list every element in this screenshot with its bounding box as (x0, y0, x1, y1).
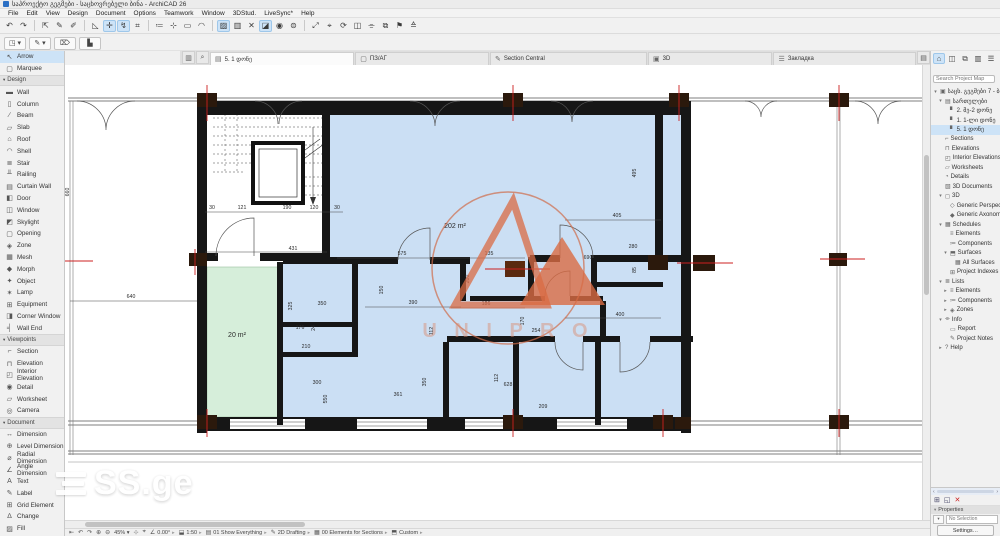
tab-label: 3D (663, 56, 671, 62)
expander-icon: ▾ (943, 250, 948, 256)
zone-icon: ◈ (5, 242, 14, 250)
toolbox-item-zone[interactable]: ◈Zone (0, 240, 64, 252)
toolbox-item-label: Column (17, 101, 39, 108)
tree-item-icon: ▘ (950, 117, 955, 124)
toolbar-icon-3[interactable]: ⇱ (39, 20, 52, 32)
toolbox-item-label: Beam (17, 112, 33, 119)
tree-item-icon: ◻ (945, 193, 950, 200)
menu-design[interactable]: Design (64, 10, 92, 17)
dim-label: 690 (584, 255, 593, 261)
tree-item-label: Zones (957, 307, 974, 313)
radial-dimension-icon: ⌀ (5, 454, 14, 462)
navigator-icon-4[interactable]: ☰ (985, 53, 997, 64)
chevron-right-icon: ▸ (172, 530, 175, 536)
toolbox-item-object[interactable]: ✦Object (0, 275, 64, 287)
quick-option-3[interactable]: ✎2D Drafting▸ (271, 529, 310, 536)
equipment-icon: ⊞ (5, 301, 14, 309)
toolbar-icon-31[interactable]: ≙ (407, 20, 420, 32)
toolbar-icon-8[interactable]: ✛ (103, 20, 116, 32)
tab-5-1-[interactable]: ▤5. 1 დონე (210, 52, 354, 65)
mesh-icon: ▦ (5, 253, 14, 261)
lamp-icon: ✶ (5, 289, 14, 297)
quick-option-button-2[interactable]: ⌦ (54, 37, 76, 50)
toolbar-icon-28[interactable]: ⌯ (365, 20, 378, 32)
toolbox-item-worksheet[interactable]: ▱Worksheet (0, 393, 64, 405)
navigator-item-surfaces[interactable]: ▾⬒Surfaces (931, 249, 1000, 259)
quick-option-label: 1:50 (186, 530, 197, 536)
dim-label: 640 (127, 294, 136, 300)
tree-item-icon: ⊞ (950, 269, 955, 276)
tree-item-icon: ▤ (945, 98, 951, 105)
stair-icon: ≣ (5, 159, 14, 167)
chevron-right-icon: ▸ (420, 530, 423, 536)
toolbox-item-label: Slab (17, 124, 30, 131)
settings-button[interactable]: Settings… (937, 525, 994, 536)
chevron-right-icon: ▸ (385, 530, 388, 536)
quick-option-0[interactable]: ∠0.00°▸ (150, 529, 175, 536)
dim-label: 495 (632, 169, 638, 178)
navigator-item-project-indexes[interactable]: ⊞Project Indexes (931, 268, 1000, 278)
toolbox-item-morph[interactable]: ◆Morph (0, 263, 64, 275)
navigator-icon-0[interactable]: ⌂ (933, 53, 945, 64)
navigator-item-3d[interactable]: ▾◻3D (931, 192, 1000, 202)
marquee-icon: ▢ (5, 65, 14, 73)
panel-icon-0[interactable]: ⊞ (934, 496, 940, 504)
chevron-right-icon: ▸ (199, 530, 202, 536)
tree-item-label: Sections (951, 136, 974, 142)
toolbox-item-label: Elevation (17, 360, 43, 367)
toolbar-separator (304, 20, 305, 31)
toolbox-item-text[interactable]: AText (0, 476, 64, 488)
toolbox-item-label: Mesh (17, 254, 32, 261)
navigator-item-components[interactable]: ≔Components (931, 239, 1000, 249)
toolbox-item-column[interactable]: ▯Column (0, 98, 64, 110)
main-toolbar: ↶↷⇱✎✐◺✛↯⌗≔⊹▭◠▨▥✕◪◉⊜⤢⌖⟳◫⌯⧉⚑≙ (0, 18, 1000, 34)
navigator-item-3d-documents[interactable]: ▧3D Documents (931, 182, 1000, 192)
menu-livesync-[interactable]: LiveSync* (260, 10, 297, 17)
expander-icon: ▾ (938, 193, 943, 199)
expander-icon: ▾ (933, 89, 938, 95)
toolbox-item-wall[interactable]: ▬Wall (0, 86, 64, 98)
toolbar-separator (212, 20, 213, 31)
navigator-item-5-1-[interactable]: ▘5. 1 დონე (931, 125, 1000, 135)
tree-item-label: Elevations (952, 146, 980, 152)
expander-icon: ▾ (938, 222, 943, 228)
chevron-down-icon[interactable]: ▾ (933, 515, 944, 524)
toolbar-icon-4[interactable]: ✎ (53, 20, 66, 32)
toolbar-separator (34, 20, 35, 31)
dim-label: 190 (283, 205, 292, 211)
navigator-item-generic-axonometry[interactable]: ◆Generic Axonometry (931, 211, 1000, 221)
tab-label: Section Central (504, 56, 545, 62)
fill-icon: ▨ (5, 525, 14, 533)
tab--[interactable]: ☰Закладка (773, 52, 916, 65)
tree-item-label: Project Indexes (957, 269, 998, 275)
dim-label: 550 (323, 395, 329, 404)
quick-option-button-3[interactable]: ▙ (79, 37, 101, 50)
toolbox-item-stair[interactable]: ≣Stair (0, 157, 64, 169)
toolbox-item-arrow[interactable]: ↖Arrow (0, 51, 64, 63)
project-map-tree: ▾▣საცხ. გეგმები 7 - ბინა▾▤სართულები▘2. მ… (931, 87, 1000, 353)
tree-item-icon: ▧ (945, 183, 951, 190)
toolbox-item-angle-dimension[interactable]: ∠Angle Dimension (0, 464, 64, 476)
tree-item-label: 2. მე-2 დონე (957, 107, 993, 114)
curtain-wall-icon: ▤ (5, 183, 14, 191)
toolbox-item-skylight[interactable]: ◩Skylight (0, 216, 64, 228)
quick-option-icon: ▦ (314, 529, 320, 536)
toolbox-item-label: Opening (17, 230, 41, 237)
tree-item-icon: ▣ (940, 88, 946, 95)
section-icon: ⌐ (5, 348, 14, 355)
floor-plan: 6606403012119012030431575135202 m²495405… (65, 65, 930, 520)
toolbox-item-lamp[interactable]: ✶Lamp (0, 287, 64, 299)
toolbox-item-label: Angle Dimension (17, 463, 64, 477)
dim-label: 390 (409, 300, 418, 306)
corner-window-icon: ◨ (5, 312, 14, 320)
tree-item-icon: ✎ (950, 335, 955, 342)
toolbox-group-design[interactable]: ▾Design (0, 75, 64, 87)
navigator-item-sections[interactable]: ⌐Sections (931, 135, 1000, 145)
navigator-item-info[interactable]: ▾⌯Info (931, 315, 1000, 325)
elevator-shaft (253, 143, 303, 203)
horizontal-scrollbar[interactable] (65, 520, 930, 528)
quick-option-button-1[interactable]: ✎ ▾ (29, 37, 51, 50)
label-icon: ✎ (5, 489, 14, 497)
quick-option-5[interactable]: ⬒Custom▸ (391, 529, 422, 536)
navigator-toolbar: ⌂◫⧉▥☰ (931, 51, 1000, 66)
railing-icon: ╨ (5, 171, 14, 178)
toolbox-item-opening[interactable]: ▢Opening (0, 228, 64, 240)
tree-item-icon: ▘ (950, 107, 955, 114)
dim-label: 300 (313, 380, 322, 386)
expander-icon: ▾ (938, 317, 943, 323)
dim-label: 575 (398, 251, 407, 257)
opening-icon: ▢ (5, 230, 14, 238)
tree-item-icon: ▦ (945, 221, 951, 228)
toolbox-item-marquee[interactable]: ▢Marquee (0, 63, 64, 75)
toolbar-icon-12[interactable]: ≔ (153, 20, 166, 32)
toolbox-item-roof[interactable]: ⌂Roof (0, 134, 64, 146)
toolbox-item-label: Object (17, 278, 35, 285)
expander-icon: ▸ (943, 288, 948, 294)
tab-icon: ▢ (360, 55, 367, 63)
toolbar-icon-27[interactable]: ◫ (351, 20, 364, 32)
toolbox-item-dimension[interactable]: ↔Dimension (0, 429, 64, 441)
toolbox-item-shell[interactable]: ◠Shell (0, 145, 64, 157)
navigator-item-interior-elevations[interactable]: ◰Interior Elevations (931, 154, 1000, 164)
toolbox-item-label: Detail (17, 384, 33, 391)
tree-item-label: 3D (952, 193, 960, 199)
navigator-item-elements[interactable]: ≡Elements (931, 230, 1000, 240)
toolbox-item-label: Dimension (17, 431, 47, 438)
dim-label: 120 (310, 205, 319, 211)
navigator-item-schedules[interactable]: ▾▦Schedules (931, 220, 1000, 230)
toolbar-icon-24[interactable]: ⤢ (309, 20, 322, 32)
statusbar-nav-icon[interactable]: ↶ (78, 529, 83, 536)
toolbox-item-label: Grid Element (17, 502, 54, 509)
toolbar-icon-1[interactable]: ↷ (17, 20, 30, 32)
toolbox-group-viewpoints[interactable]: ▾Viewpoints (0, 334, 64, 346)
toolbox-item-label: Marquee (17, 65, 42, 72)
toolbar-icon-21[interactable]: ◉ (273, 20, 286, 32)
toolbox-item-railing[interactable]: ╨Railing (0, 169, 64, 181)
panel-icon-1[interactable]: ◱ (944, 496, 951, 504)
navigator-item-zones[interactable]: ▸◈Zones (931, 306, 1000, 316)
toolbox-item-camera[interactable]: ◎Camera (0, 405, 64, 417)
toolbox-item-section[interactable]: ⌐Section (0, 346, 64, 358)
tree-item-icon: ≡ (950, 231, 954, 237)
room-fill-green (207, 267, 279, 417)
dim-label: 121 (238, 205, 247, 211)
statusbar-nav-icon[interactable]: ⇤ (69, 529, 74, 536)
quick-option-label: 2D Drafting (278, 530, 306, 536)
quick-option-icon: ∠ (150, 529, 155, 536)
tree-item-label: Interior Elevations (953, 155, 1000, 161)
dim-label: 112 (494, 374, 500, 382)
statusbar-nav-icon[interactable]: ↷ (87, 529, 92, 536)
statusbar-nav-icon[interactable]: ⊕ (96, 529, 101, 536)
toolbar-icon-7[interactable]: ◺ (89, 20, 102, 32)
quick-option-1[interactable]: ⬓1:50▸ (179, 529, 202, 536)
toolbar-icon-17[interactable]: ▨ (217, 20, 230, 32)
toolbar-icon-13[interactable]: ⊹ (167, 20, 180, 32)
title-bar: საპროექტო გეგმები - საცხოვრებელი ბინა - … (0, 0, 1000, 9)
navigator-icon-2[interactable]: ⧉ (959, 53, 971, 64)
navigator-item-help[interactable]: ▸?Help (931, 344, 1000, 354)
tab-3d[interactable]: ▣3D (648, 52, 772, 65)
tree-item-label: Info (952, 317, 962, 323)
toolbox-item-equipment[interactable]: ⊞Equipment (0, 299, 64, 311)
tree-item-label: All Surfaces (963, 260, 995, 266)
toolbox-item-door[interactable]: ◧Door (0, 193, 64, 205)
toolbar-icon-20[interactable]: ◪ (259, 20, 272, 32)
navigator-item-components[interactable]: ▸≔Components (931, 296, 1000, 306)
expander-icon: ▸ (943, 307, 948, 313)
expander-icon: ▸ (938, 345, 943, 351)
tree-item-icon: ≣ (945, 278, 950, 285)
tree-item-label: Generic Axonometry (957, 212, 1000, 218)
chevron-right-icon: ▸ (308, 530, 311, 536)
navigator-item-elevations[interactable]: ⊓Elevations (931, 144, 1000, 154)
menu-help[interactable]: Help (297, 10, 318, 17)
tab--[interactable]: ▢ПЗ/АГ (355, 52, 489, 65)
tab-icon: ▤ (215, 55, 222, 63)
beam-icon: ∕ (5, 112, 14, 119)
camera-icon: ◎ (5, 407, 14, 415)
toolbox-item-label: Label (17, 490, 32, 497)
app-icon (3, 1, 9, 7)
statusbar-tool-icon[interactable]: ⊹ (133, 529, 138, 536)
quick-option-icon: ▤ (206, 529, 212, 536)
search-input[interactable] (933, 75, 995, 83)
toolbox-item-fill[interactable]: ▨Fill (0, 523, 64, 535)
navigator-item-details[interactable]: ◔Details (931, 173, 1000, 183)
toolbox-item-change[interactable]: ∆Change (0, 511, 64, 523)
tree-item-label: 5. 1 დონე (957, 126, 984, 133)
toolbox-item-slab[interactable]: ▱Slab (0, 122, 64, 134)
properties-header[interactable]: ▾Properties (931, 506, 1000, 514)
elevation-icon: ⊓ (5, 360, 14, 368)
worksheet-icon: ▱ (5, 395, 14, 403)
toolbar-icon-10[interactable]: ⌗ (131, 20, 144, 32)
tab-section-central[interactable]: ✎Section Central (490, 52, 647, 65)
dim-label: 202 m² (444, 223, 466, 230)
toolbar-icon-14[interactable]: ▭ (181, 20, 194, 32)
tree-item-label: Schedules (953, 222, 981, 228)
navigator-item-elements[interactable]: ▸≡Elements (931, 287, 1000, 297)
quick-option-2[interactable]: ▤01 Show Everything▸ (206, 529, 267, 536)
tab-icon: ☰ (778, 55, 784, 63)
level-dimension-icon: ⊕ (5, 442, 14, 450)
menu-window[interactable]: Window (198, 10, 229, 17)
toolbox-item-label: Wall End (17, 325, 42, 332)
quick-option-icon: ⬒ (391, 529, 397, 536)
dim-label: 405 (613, 213, 622, 219)
navigator-item-lists[interactable]: ▾≣Lists (931, 277, 1000, 287)
toolbox-item-label: Window (17, 207, 39, 214)
toolbox-item-label[interactable]: ✎Label (0, 487, 64, 499)
tree-item-label: Surfaces (958, 250, 982, 256)
wall-end-icon: ╡ (5, 325, 14, 332)
navigator-item-1-1-[interactable]: ▘1. 1-ლი დონე (931, 116, 1000, 126)
navigator-item--7-[interactable]: ▾▣საცხ. გეგმები 7 - ბინა (931, 87, 1000, 97)
tab-list-button[interactable]: ▥ (182, 51, 195, 64)
toolbar-icon-22[interactable]: ⊜ (287, 20, 300, 32)
dim-label: 30 (209, 205, 215, 211)
window-title: საპროექტო გეგმები - საცხოვრებელი ბინა - … (12, 0, 186, 8)
toolbox-item-mesh[interactable]: ▦Mesh (0, 252, 64, 264)
toolbox-item-curtain-wall[interactable]: ▤Curtain Wall (0, 181, 64, 193)
door-icon: ◧ (5, 194, 14, 202)
chevron-right-icon: ▸ (264, 530, 267, 536)
quick-option-label: Custom (399, 530, 418, 536)
toolbar-icon-0[interactable]: ↶ (3, 20, 16, 32)
toolbox-item-label: Roof (17, 136, 30, 143)
toolbox-item-label: Lamp (17, 289, 33, 296)
drawing-canvas[interactable]: 6606403012119012030431575135202 m²495405… (65, 65, 930, 520)
toolbar-icon-25[interactable]: ⌖ (323, 20, 336, 32)
tree-item-label: Components (958, 241, 992, 247)
tree-item-icon: ⌯ (945, 316, 950, 323)
toolbox-item-detail[interactable]: ◉Detail (0, 381, 64, 393)
toolbar-separator (84, 20, 85, 31)
navigator-icon-1[interactable]: ◫ (946, 53, 958, 64)
menu-teamwork[interactable]: Teamwork (160, 10, 198, 17)
toolbar-icon-5[interactable]: ✐ (67, 20, 80, 32)
toolbar-icon-15[interactable]: ◠ (195, 20, 208, 32)
dim-label: 350 (422, 378, 428, 387)
menu-bar: FileEditViewDesignDocumentOptionsTeamwor… (0, 9, 1000, 18)
status-bar: ⇤↶↷⊕⊖45% ▾⊹⌖∠0.00°▸⬓1:50▸▤01 Show Everyt… (65, 528, 930, 536)
toolbox-item-corner-window[interactable]: ◨Corner Window (0, 311, 64, 323)
wall-icon: ▬ (5, 89, 14, 96)
tab-list-button[interactable]: ⌕ (196, 51, 209, 64)
statusbar-nav-icon[interactable]: ⊖ (105, 529, 110, 536)
tab-label: ПЗ/АГ (370, 56, 387, 62)
tree-item-label: Components (958, 298, 992, 304)
navigator-item-all-surfaces[interactable]: ▦All Surfaces (931, 258, 1000, 268)
window-icon: ◫ (5, 206, 14, 214)
toolbar-icon-26[interactable]: ⟳ (337, 20, 350, 32)
menu-options[interactable]: Options (130, 10, 160, 17)
close-icon[interactable]: ✕ (955, 496, 961, 504)
toolbox-item-label: Stair (17, 160, 30, 167)
arrow-icon: ↖ (5, 53, 14, 61)
toolbox-group-document[interactable]: ▾Document (0, 417, 64, 429)
vertical-scrollbar[interactable] (922, 65, 930, 520)
tab-overflow-button[interactable]: ▤ (917, 51, 930, 64)
properties-header-label: Properties (938, 507, 963, 513)
dim-label: 30 (334, 205, 340, 211)
quick-option-label: 01 Show Everything (213, 530, 262, 536)
toolbox-item-window[interactable]: ◫Window (0, 204, 64, 216)
text-icon: A (5, 478, 14, 485)
dim-label: 325 (288, 302, 294, 311)
quick-option-button-0[interactable]: ◳ ▾ (4, 37, 26, 50)
quick-option-4[interactable]: ▦00 Elements for Sections▸ (314, 529, 387, 536)
menu-view[interactable]: View (42, 10, 64, 17)
toolbox-item-interior-elevation[interactable]: ◰Interior Elevation (0, 370, 64, 382)
navigator-icon-3[interactable]: ▥ (972, 53, 984, 64)
roof-icon: ⌂ (5, 136, 14, 143)
tab-label: 5. 1 დონე (225, 56, 252, 63)
toolbar-icon-9[interactable]: ↯ (117, 20, 130, 32)
toolbar-icon-18[interactable]: ▥ (231, 20, 244, 32)
menu-document[interactable]: Document (92, 10, 130, 17)
toolbar-icon-30[interactable]: ⚑ (393, 20, 406, 32)
navigator-item-generic-perspective[interactable]: ◇Generic Perspective (931, 201, 1000, 211)
toolbox-item-label: Zone (17, 242, 31, 249)
toolbox-item-wall-end[interactable]: ╡Wall End (0, 322, 64, 334)
watermark-text: U N I P R O (422, 320, 593, 342)
toolbox-item-label: Door (17, 195, 31, 202)
tree-item-label: Details (951, 174, 969, 180)
toolbar-icon-19[interactable]: ✕ (245, 20, 258, 32)
tree-item-icon: ◰ (945, 155, 951, 162)
toolbox-item-beam[interactable]: ∕Beam (0, 110, 64, 122)
tree-item-label: Generic Perspective (957, 203, 1000, 209)
statusbar-tool-icon[interactable]: ⌖ (142, 529, 145, 536)
view-tab-bar: ▥⌕▤5. 1 დონე▢ПЗ/АГ✎Section Central▣3D☰За… (180, 51, 930, 65)
tree-item-label: Help (950, 345, 962, 351)
zoom-level[interactable]: 45% ▾ (114, 530, 129, 536)
selection-field[interactable]: No Selection (946, 515, 998, 524)
panel-scroll-strip[interactable]: ‹› (931, 488, 1000, 495)
navigator-item-project-notes[interactable]: ✎Project Notes (931, 334, 1000, 344)
toolbox-item-grid-element[interactable]: ⊞Grid Element (0, 499, 64, 511)
shell-icon: ◠ (5, 147, 14, 155)
navigator-item-worksheets[interactable]: ▱Worksheets (931, 163, 1000, 173)
menu-edit[interactable]: Edit (22, 10, 41, 17)
navigator-item-2-2-[interactable]: ▘2. მე-2 დონე (931, 106, 1000, 116)
dim-label: 20 m² (228, 332, 247, 339)
tree-item-icon: ▘ (950, 126, 955, 133)
toolbar-icon-29[interactable]: ⧉ (379, 20, 392, 32)
navigator-item--[interactable]: ▾▤სართულები (931, 97, 1000, 107)
tree-item-icon: ⊓ (945, 145, 950, 152)
toolbox-palette: ↖Arrow▢Marquee▾Design▬Wall▯Column∕Beam▱S… (0, 51, 65, 536)
toolbox-item-label: Equipment (17, 301, 47, 308)
menu-3dstud-[interactable]: 3DStud. (229, 10, 261, 17)
toolbox-item-label: Section (17, 348, 38, 355)
toolbox-item-label: Wall (17, 89, 29, 96)
dim-label: 350 (318, 301, 327, 307)
quick-option-label: 0.00° (157, 530, 170, 536)
menu-file[interactable]: File (4, 10, 22, 17)
archicad-window: { "window": { "title": "საპროექტო გეგმებ… (0, 0, 1000, 536)
navigator-item-report[interactable]: ▭Report (931, 325, 1000, 335)
quick-option-icon: ⬓ (179, 529, 185, 536)
